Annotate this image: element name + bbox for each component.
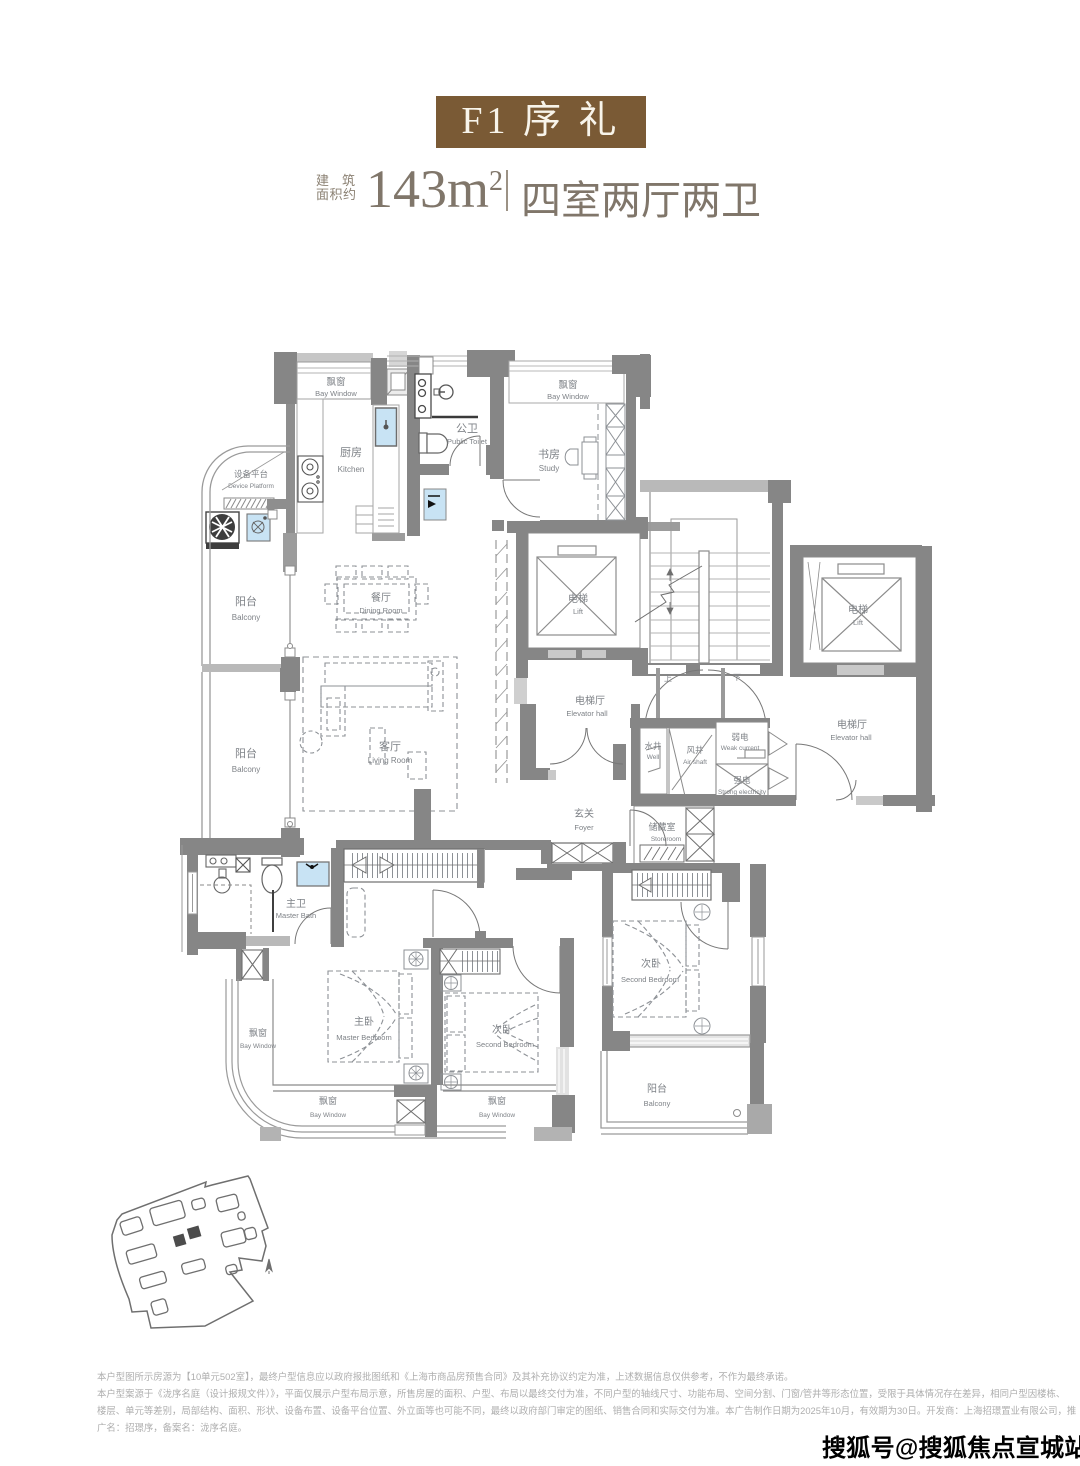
svg-text:Dining Room: Dining Room <box>359 606 402 615</box>
svg-text:飘窗: 飘窗 <box>558 379 577 391</box>
svg-text:Lift: Lift <box>573 607 584 616</box>
svg-text:厨房: 厨房 <box>340 446 362 459</box>
svg-text:Kitchen: Kitchen <box>338 465 365 474</box>
svg-text:强电: 强电 <box>733 775 751 785</box>
svg-text:Well: Well <box>647 754 660 761</box>
svg-text:Bay Window: Bay Window <box>315 389 357 398</box>
svg-text:Master Bath: Master Bath <box>276 911 316 920</box>
svg-text:玄关: 玄关 <box>574 807 594 820</box>
svg-text:弱电: 弱电 <box>731 732 749 742</box>
svg-text:Balcony: Balcony <box>644 1099 671 1108</box>
svg-text:Study: Study <box>539 464 559 473</box>
svg-text:电梯: 电梯 <box>848 603 868 616</box>
svg-text:Master Bedroom: Master Bedroom <box>336 1033 391 1042</box>
svg-text:客厅: 客厅 <box>379 739 401 753</box>
svg-text:Elevator hall: Elevator hall <box>830 733 872 742</box>
svg-text:飘窗: 飘窗 <box>326 376 345 388</box>
svg-text:主卫: 主卫 <box>286 898 306 910</box>
svg-text:次卧: 次卧 <box>641 957 661 970</box>
svg-text:Bay Window: Bay Window <box>310 1112 346 1119</box>
svg-text:飘窗: 飘窗 <box>319 1095 337 1106</box>
svg-text:餐厅: 餐厅 <box>371 591 391 604</box>
svg-text:电梯厅: 电梯厅 <box>837 718 867 731</box>
svg-text:飘窗: 飘窗 <box>249 1027 267 1038</box>
svg-text:电梯: 电梯 <box>568 592 588 605</box>
svg-text:Living Room: Living Room <box>368 756 413 765</box>
svg-text:飘窗: 飘窗 <box>488 1095 506 1106</box>
svg-text:Balcony: Balcony <box>232 765 260 774</box>
svg-text:阳台: 阳台 <box>235 594 257 608</box>
svg-text:Bay Window: Bay Window <box>240 1043 276 1050</box>
svg-text:Weak current: Weak current <box>721 745 760 752</box>
svg-text:阳台: 阳台 <box>235 746 257 760</box>
svg-text:Lift: Lift <box>853 618 864 627</box>
svg-text:Air shaft: Air shaft <box>683 759 707 766</box>
svg-text:主卧: 主卧 <box>354 1015 374 1028</box>
svg-text:Device Platform: Device Platform <box>228 483 274 490</box>
svg-text:Second Bedroom: Second Bedroom <box>476 1040 534 1049</box>
svg-text:阳台: 阳台 <box>647 1082 667 1095</box>
svg-text:Balcony: Balcony <box>232 613 260 622</box>
svg-text:水井: 水井 <box>644 741 661 751</box>
svg-text:Elevator hall: Elevator hall <box>566 709 608 718</box>
svg-text:次卧: 次卧 <box>492 1023 512 1036</box>
svg-text:公卫: 公卫 <box>456 423 478 435</box>
svg-text:风井: 风井 <box>686 745 703 755</box>
svg-text:书房: 书房 <box>538 448 560 461</box>
svg-text:Bay Window: Bay Window <box>547 392 589 401</box>
svg-text:设备平台: 设备平台 <box>234 469 268 479</box>
svg-text:Second Bedroom: Second Bedroom <box>621 975 679 984</box>
svg-text:Foyer: Foyer <box>574 823 594 832</box>
svg-text:Strong electricity: Strong electricity <box>718 789 767 796</box>
svg-text:Bay Window: Bay Window <box>479 1112 515 1119</box>
svg-text:电梯厅: 电梯厅 <box>575 694 605 707</box>
